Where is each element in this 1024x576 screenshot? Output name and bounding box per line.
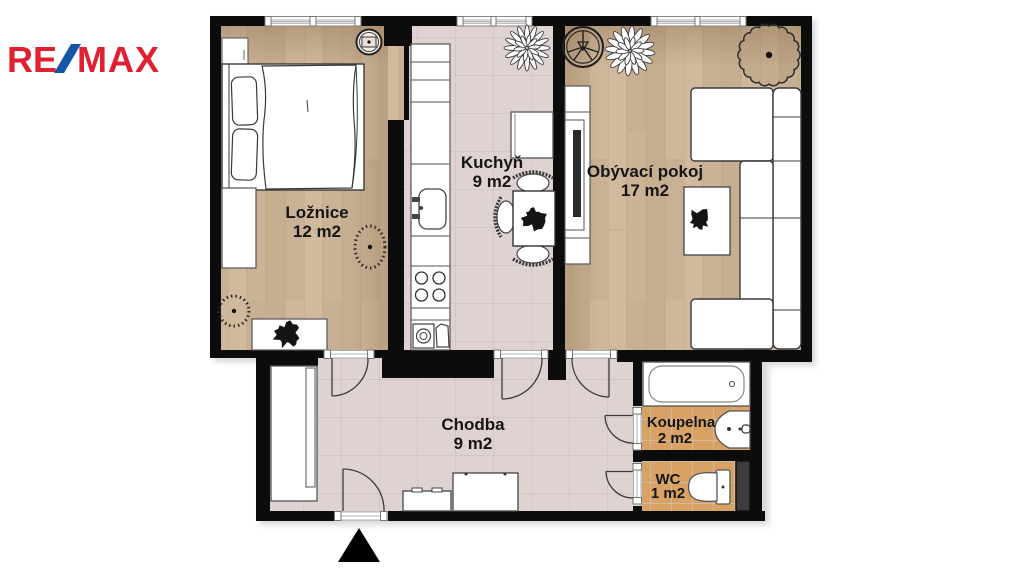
svg-text:1 m2: 1 m2 (651, 485, 685, 502)
svg-text:MAX: MAX (77, 39, 160, 80)
svg-text:9 m2: 9 m2 (454, 434, 493, 453)
svg-text:Koupelna: Koupelna (647, 414, 716, 431)
svg-text:Kuchyň: Kuchyň (461, 153, 523, 172)
svg-text:9 m2: 9 m2 (473, 172, 512, 191)
svg-text:Obývací pokoj: Obývací pokoj (587, 162, 703, 181)
svg-text:17 m2: 17 m2 (621, 181, 669, 200)
svg-text:12 m2: 12 m2 (293, 222, 341, 241)
svg-text:Chodba: Chodba (441, 415, 505, 434)
svg-text:2 m2: 2 m2 (658, 430, 692, 447)
svg-text:RE: RE (7, 39, 57, 80)
svg-text:Ložnice: Ložnice (285, 203, 348, 222)
